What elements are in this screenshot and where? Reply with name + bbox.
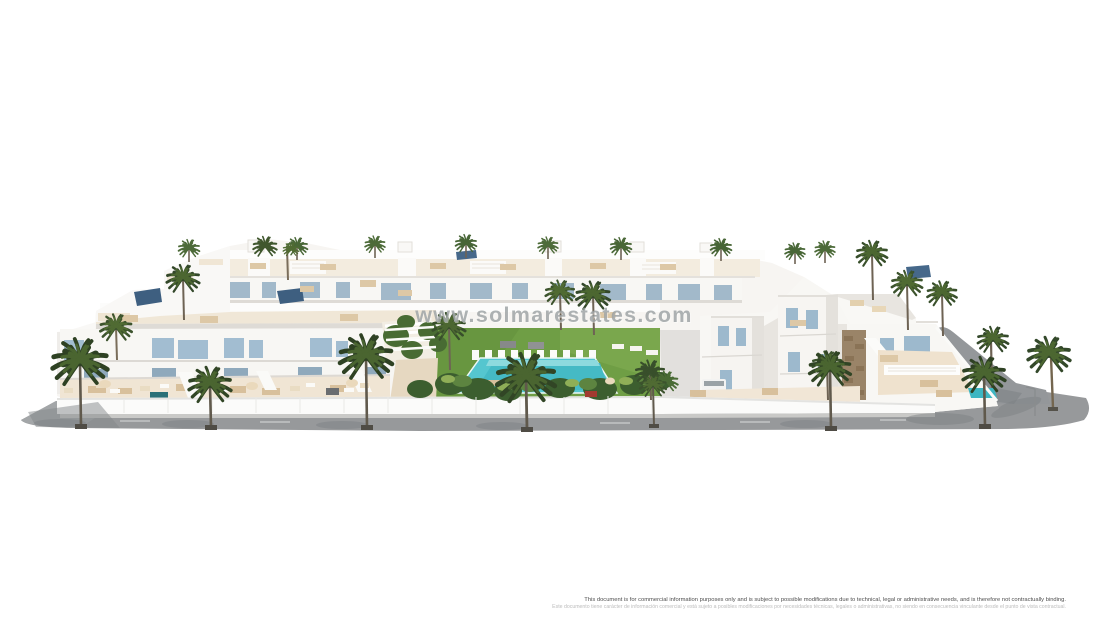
svg-text:Este documento tiene carácter: Este documento tiene carácter de informa… [552,604,1066,610]
svg-text:www.solmarestates.com: www.solmarestates.com [414,303,692,327]
svg-text:This document is for commercia: This document is for commercial informat… [584,597,1066,603]
